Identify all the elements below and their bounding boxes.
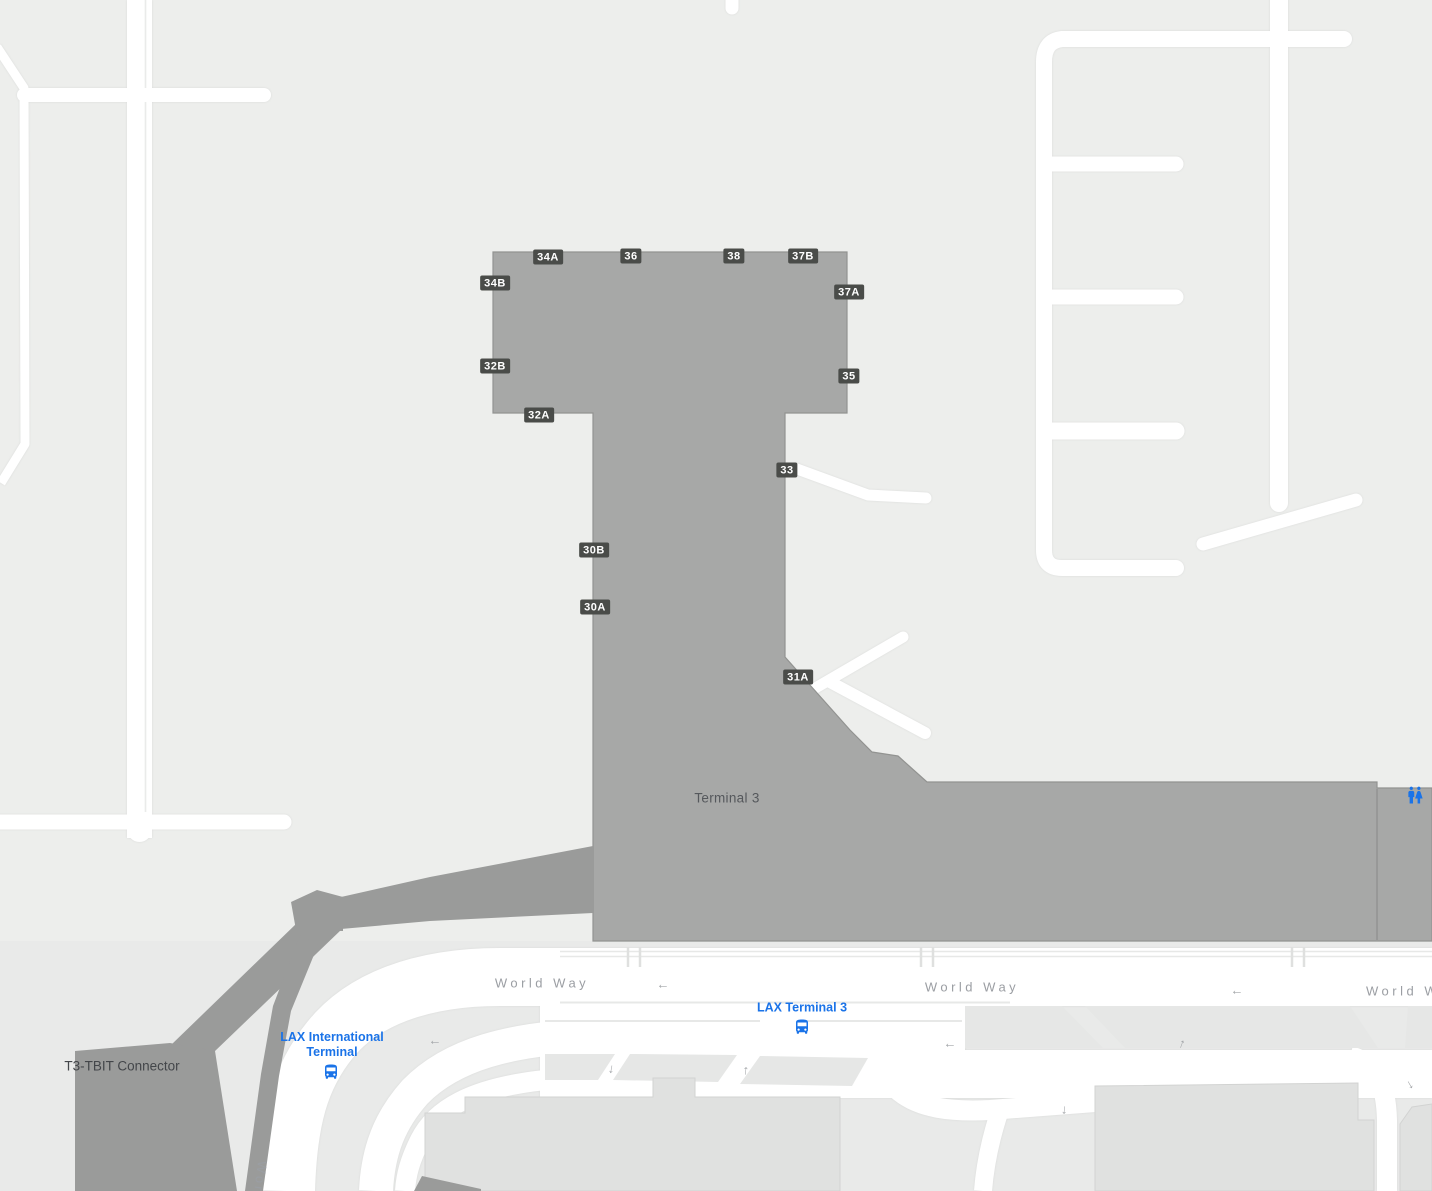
gate-badge-32b[interactable]: 32B	[480, 358, 510, 373]
gate-badge-35[interactable]: 35	[838, 368, 859, 383]
parking-structure-right[interactable]	[1095, 1083, 1374, 1191]
traffic-arrow-icon: ←	[429, 1033, 442, 1048]
gate-badge-36[interactable]: 36	[620, 248, 641, 263]
gate-badge-34a[interactable]: 34A	[533, 249, 563, 264]
traffic-arrow-icon: ←	[1054, 1103, 1070, 1117]
street-label-world-way-1: World Way	[495, 976, 589, 991]
traffic-arrow-icon: ←	[1231, 983, 1244, 998]
map-canvas[interactable]: 34A 36 38 37B 34B 37A 32B 35 32A 33 30B …	[0, 0, 1432, 1191]
road-station-area	[540, 1000, 965, 1052]
t3-tbit-connector-label[interactable]: T3-TBIT Connector	[64, 1059, 179, 1074]
terminal-3-label[interactable]: Terminal 3	[694, 791, 759, 806]
station-label-lax-terminal-3[interactable]: LAX Terminal 3	[757, 1001, 847, 1016]
gate-badge-38[interactable]: 38	[723, 248, 744, 263]
gate-badge-34b[interactable]: 34B	[480, 275, 510, 290]
gate-badge-31a[interactable]: 31A	[783, 669, 813, 684]
gate-badge-30a[interactable]: 30A	[580, 599, 610, 614]
gate-badge-32a[interactable]: 32A	[524, 407, 554, 422]
bus-icon[interactable]	[322, 1063, 340, 1081]
gate-badge-37b[interactable]: 37B	[788, 248, 818, 263]
traffic-arrow-icon: ←	[944, 1036, 957, 1051]
gate-badge-33[interactable]: 33	[776, 462, 797, 477]
station-label-lax-international-terminal[interactable]: LAX International Terminal	[268, 1030, 396, 1060]
bus-icon[interactable]	[793, 1018, 811, 1036]
traffic-arrow-icon: ←	[657, 977, 670, 992]
road-vertical-left	[127, 0, 152, 838]
gate-badge-37a[interactable]: 37A	[834, 284, 864, 299]
gate-badge-30b[interactable]: 30B	[579, 542, 609, 557]
street-label-world-way-3: World Way	[1366, 984, 1432, 999]
map-svg	[0, 0, 1432, 1191]
street-label-world-way-2: World Way	[925, 980, 1019, 995]
traffic-arrow-icon: ←	[600, 1061, 617, 1076]
building-far-right[interactable]	[1400, 1104, 1432, 1191]
traffic-arrow-icon: ←	[740, 1064, 756, 1078]
